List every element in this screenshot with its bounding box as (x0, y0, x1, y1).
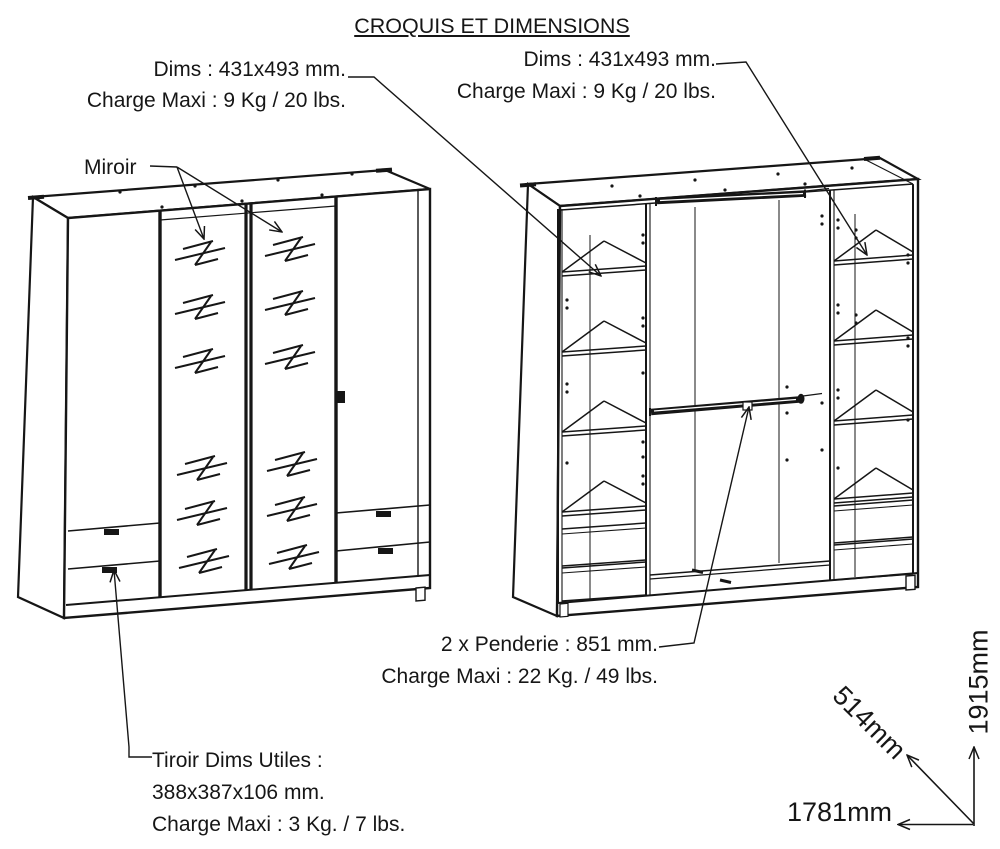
mirror-door-handle (337, 391, 345, 403)
miroir-leader-stem (150, 166, 177, 167)
tiroir-line: Tiroir Dims Utiles : (152, 745, 405, 777)
tiroir-annotation: Tiroir Dims Utiles : 388x387x106 mm. Cha… (152, 745, 405, 841)
penderie-annotation: 2 x Penderie : 851 mm. Charge Maxi : 22 … (310, 629, 658, 693)
wardrobe-foot (416, 587, 425, 601)
depth-dimension-arrow (907, 755, 974, 824)
wardrobe-foot (560, 603, 568, 617)
dims-annotation-line: Dims : 431x493 mm. (6, 54, 346, 85)
charge-annotation-line: Charge Maxi : 9 Kg / 20 lbs. (6, 85, 346, 116)
dimension-arrows (898, 747, 974, 826)
charge-annotation-line: Charge Maxi : 3 Kg. / 7 lbs. (152, 809, 405, 841)
page-title: CROQUIS ET DIMENSIONS (290, 11, 694, 42)
height-dimension-label: 1915mm (966, 629, 993, 734)
wardrobe-foot (906, 575, 915, 590)
dims-annotation-right: Dims : 431x493 mm. Charge Maxi : 9 Kg / … (383, 44, 716, 108)
dims-annotation-line: Dims : 431x493 mm. (383, 44, 716, 76)
croquis-page: { "title": "CROQUIS ET DIMENSIONS", "ann… (0, 0, 1000, 849)
charge-annotation-line: Charge Maxi : 9 Kg / 20 lbs. (383, 76, 716, 108)
charge-annotation-line: Charge Maxi : 22 Kg. / 49 lbs. (310, 661, 658, 693)
dims-annotation-left: Dims : 431x493 mm. Charge Maxi : 9 Kg / … (6, 54, 346, 116)
width-dimension-label: 1781mm (787, 799, 892, 826)
penderie-line: 2 x Penderie : 851 mm. (310, 629, 658, 661)
wardrobe-closed-view (18, 170, 430, 618)
miroir-label: Miroir (84, 152, 137, 183)
tiroir-line: 388x387x106 mm. (152, 777, 405, 809)
rail-bracket (743, 402, 752, 410)
